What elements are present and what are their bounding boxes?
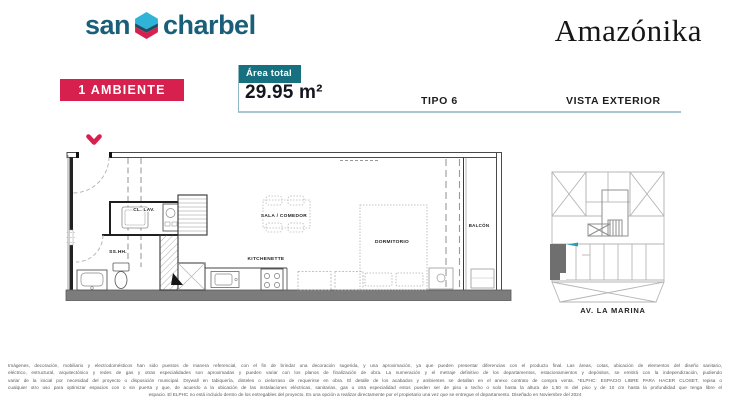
site-key-plan	[538, 160, 723, 306]
building-outline	[552, 172, 664, 302]
appliance-dashed	[335, 272, 363, 291]
stove	[261, 269, 283, 290]
disclaimer-line: espacio. El ELPHC no está incluido dentr…	[8, 391, 722, 398]
logo-word-san: san	[85, 12, 130, 39]
bathroom-door-swing	[76, 235, 103, 262]
logo-hexagon-icon	[135, 12, 158, 39]
label-sshh: SS.HH.	[109, 249, 127, 255]
logo-word-charbel: charbel	[163, 12, 256, 39]
street-label: AV. LA MARINA	[538, 306, 688, 315]
brand-logo: san charbel	[85, 12, 256, 39]
label-dormitorio: DORMITORIO	[375, 239, 409, 245]
label-sala-comedor: SALA / COMEDOR	[261, 213, 307, 219]
disclaimer-line: cualquier otro uso para optimizar espaci…	[8, 384, 722, 391]
ambiente-badge: 1 AMBIENTE	[60, 79, 184, 101]
floor-plan: CL. LAV. SS.HH. KITCHENETTE SALA / COMED…	[65, 133, 515, 305]
legal-disclaimer: Imágenes, decoración, mobiliario y elect…	[8, 362, 722, 398]
bottom-wall	[66, 290, 511, 301]
highlighted-unit-notch	[560, 273, 566, 280]
disclaimer-line: Imágenes, decoración, mobiliario y elect…	[8, 362, 722, 369]
area-header: Área total 29.95 m² TIPO 6 VISTA EXTERIO…	[238, 65, 681, 113]
area-value: 29.95 m²	[245, 82, 323, 104]
area-total-tab: Área total	[239, 65, 301, 83]
disclaimer-line: eléctrico, estructural, arquitectónico y…	[8, 369, 722, 376]
label-kitchenette: KITCHENETTE	[248, 256, 285, 262]
bathroom	[76, 235, 129, 290]
kitchenette	[205, 268, 363, 290]
bed-dotted	[360, 205, 427, 290]
label-cl-lav: CL. LAV.	[133, 207, 155, 213]
nightstand	[429, 268, 453, 289]
tipo-label: TIPO 6	[421, 95, 458, 107]
toilet	[113, 263, 129, 271]
disclaimer-line: variar de la inicial por necesidad del p…	[8, 377, 722, 384]
vista-exterior-label: VISTA EXTERIOR	[566, 95, 661, 107]
balcony-unit	[471, 269, 494, 288]
project-title: Amazónika	[555, 14, 702, 48]
unit-arrow-icon	[567, 243, 578, 247]
entry-door-swing	[73, 157, 109, 193]
appliance-dashed	[298, 272, 331, 291]
shaft-hatched-area	[178, 195, 207, 235]
laundry-closet	[102, 202, 178, 235]
label-balcon: BALCÓN	[469, 223, 490, 228]
